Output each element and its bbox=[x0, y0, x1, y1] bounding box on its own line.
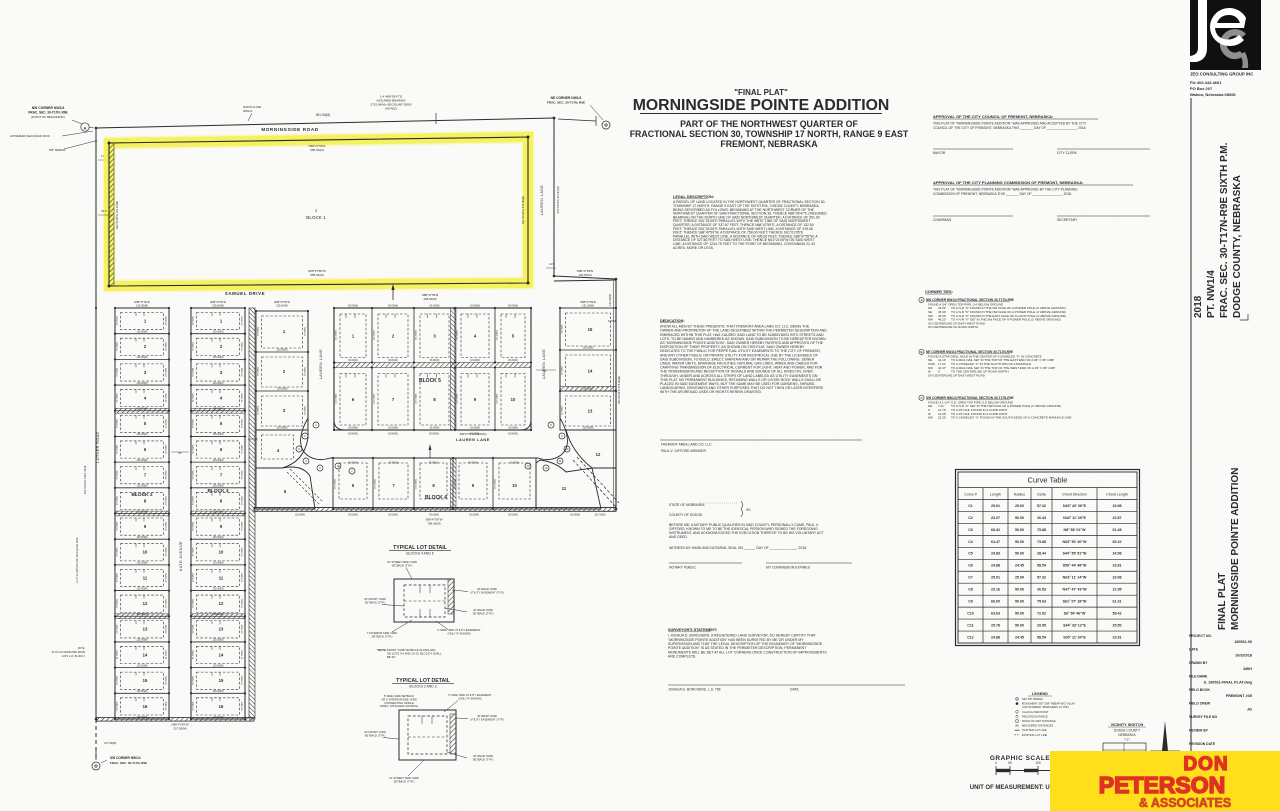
svg-text:60.00(M): 60.00(M) bbox=[117, 650, 119, 659]
svg-text:REVISION DATE: REVISION DATE bbox=[1189, 742, 1216, 746]
svg-text:11: 11 bbox=[562, 486, 567, 491]
svg-text:FINAL PLAT: FINAL PLAT bbox=[1217, 573, 1228, 630]
svg-text:13: 13 bbox=[143, 627, 148, 632]
svg-text:125.00(M): 125.00(M) bbox=[137, 330, 148, 333]
svg-text:ON CENTERLINE OF ROAD NORTH: ON CENTERLINE OF ROAD NORTH bbox=[928, 325, 978, 329]
svg-text:LAUREN LANE: LAUREN LANE bbox=[456, 438, 490, 442]
svg-text:SETBACK (TYP.): SETBACK (TYP.) bbox=[473, 611, 494, 615]
svg-text:63.00(M): 63.00(M) bbox=[508, 305, 518, 308]
svg-text:83.08'(M): 83.08'(M) bbox=[508, 434, 518, 436]
svg-text:NW1/4: NW1/4 bbox=[243, 109, 253, 113]
svg-text:60.00(M): 60.00(M) bbox=[193, 573, 195, 582]
svg-text:SW CORNER NW1/4: SW CORNER NW1/4 bbox=[110, 756, 141, 760]
svg-text:RECORD DISTANCE: RECORD DISTANCE bbox=[1022, 714, 1048, 718]
svg-text:APPROVAL OF THE CITY PLANNING: APPROVAL OF THE CITY PLANNING COMMISSION… bbox=[933, 180, 1083, 185]
svg-text:125.00(M): 125.00(M) bbox=[137, 664, 148, 667]
svg-text:SECRETARY: SECRETARY bbox=[1057, 218, 1078, 222]
svg-text:60.00(M): 60.00(M) bbox=[193, 702, 195, 711]
svg-text:63.00(M): 63.00(M) bbox=[508, 427, 518, 430]
svg-text:5' SIDE YARD UTILITY EASEMENT: 5' SIDE YARD UTILITY EASEMENT bbox=[437, 628, 481, 632]
svg-text:COUNCIL OF THE CITY OF FREMONT: COUNCIL OF THE CITY OF FREMONT, NEBRASKA… bbox=[933, 126, 1086, 130]
svg-text:B: B bbox=[920, 350, 922, 354]
svg-text:50: 50 bbox=[1008, 761, 1012, 765]
svg-text:60.00(M): 60.00(M) bbox=[242, 676, 244, 685]
svg-text:61.31: 61.31 bbox=[1113, 600, 1122, 604]
svg-text:60.00(M): 60.00(M) bbox=[166, 368, 168, 377]
svg-text:125.00(M): 125.00(M) bbox=[213, 433, 224, 436]
svg-text:24.58: 24.58 bbox=[1113, 552, 1122, 556]
svg-text:60.00(M): 60.00(M) bbox=[166, 573, 168, 582]
svg-text:125.00(M): 125.00(M) bbox=[213, 485, 224, 488]
svg-text:12.5': 12.5' bbox=[549, 262, 555, 266]
svg-text:MONUMENT SET (5/8" REBAR W/2": MONUMENT SET (5/8" REBAR W/2" ALUM bbox=[1022, 702, 1075, 706]
svg-text:60.00(M): 60.00(M) bbox=[166, 624, 168, 633]
svg-text:12: 12 bbox=[596, 452, 601, 457]
svg-text:Curve #: Curve # bbox=[964, 493, 977, 497]
svg-text:NE CORNER NW1/4 FRACTIONAL SEC: NE CORNER NW1/4 FRACTIONAL SECTION 30-T1… bbox=[926, 350, 1013, 354]
svg-text:26.44: 26.44 bbox=[1037, 516, 1046, 520]
svg-text:FRAC. SEC. 30-T17N, R9E: FRAC. SEC. 30-T17N, R9E bbox=[547, 101, 585, 105]
svg-text:PART OF THE NORTHWEST QUARTER: PART OF THE NORTHWEST QUARTER OF bbox=[680, 119, 858, 129]
svg-text:(M)-R(D): (M)-R(D) bbox=[385, 107, 396, 111]
svg-text:60.00(M): 60.00(M) bbox=[193, 419, 195, 428]
svg-text:N63° 50' 40"W: N63° 50' 40"W bbox=[1063, 540, 1088, 544]
svg-text:132.50(M): 132.50(M) bbox=[578, 273, 591, 277]
svg-text:16: 16 bbox=[143, 704, 148, 709]
svg-text:125.00(M): 125.00(M) bbox=[213, 536, 224, 539]
svg-text:DATE: DATE bbox=[790, 688, 800, 692]
svg-text:PT. NW1/4: PT. NW1/4 bbox=[1206, 270, 1217, 318]
svg-text:12: 12 bbox=[219, 601, 224, 606]
svg-text:125.00(M): 125.00(M) bbox=[137, 382, 148, 385]
svg-text:C11: C11 bbox=[967, 623, 973, 627]
svg-text:125.00(M): 125.00(M) bbox=[137, 433, 148, 436]
svg-text:NW CORNER NW1/4: NW CORNER NW1/4 bbox=[32, 106, 65, 110]
svg-text:APPROVAL OF THE CITY COUNCIL O: APPROVAL OF THE CITY COUNCIL OF FREMONT,… bbox=[933, 114, 1053, 119]
svg-text:40' REAR YARD: 40' REAR YARD bbox=[477, 587, 497, 591]
svg-text:60.00(M): 60.00(M) bbox=[193, 676, 195, 685]
svg-text:2-1/2" ALUMINUM CAP (SEC/QUAR: 2-1/2" ALUMINUM CAP (SEC/QUAR ROD) bbox=[76, 537, 79, 583]
svg-text:24.88: 24.88 bbox=[991, 635, 1000, 639]
svg-text:ARE COMPLETE.: ARE COMPLETE. bbox=[668, 655, 696, 659]
svg-text:60.00(M): 60.00(M) bbox=[242, 368, 244, 377]
svg-text:60.00(M): 60.00(M) bbox=[166, 342, 168, 351]
svg-text:50.00: 50.00 bbox=[1015, 540, 1024, 544]
svg-text:408.00(M): 408.00(M) bbox=[423, 297, 436, 301]
svg-text:40' REAR YARD: 40' REAR YARD bbox=[477, 714, 497, 718]
svg-text:BE 30'.: BE 30'. bbox=[387, 655, 396, 659]
svg-text:25.01: 25.01 bbox=[991, 504, 1000, 508]
svg-text:23.91: 23.91 bbox=[1113, 635, 1122, 639]
svg-text:125.00(M): 125.00(M) bbox=[457, 394, 459, 404]
svg-text:75.88: 75.88 bbox=[1037, 528, 1046, 532]
svg-text:CITY CLERK: CITY CLERK bbox=[1057, 151, 1078, 155]
svg-text:23.16: 23.16 bbox=[991, 588, 1000, 592]
svg-text:60.00(M): 60.00(M) bbox=[242, 470, 244, 479]
svg-text:22.35': 22.35' bbox=[938, 416, 947, 420]
svg-text:50.00: 50.00 bbox=[1015, 600, 1024, 604]
svg-text:N88°47'52"E: N88°47'52"E bbox=[274, 300, 290, 304]
svg-text:60.00(M): 60.00(M) bbox=[242, 419, 244, 428]
svg-text:60.00(M): 60.00(M) bbox=[166, 702, 168, 711]
svg-text:MEASURED DISTANCES: MEASURED DISTANCES bbox=[1022, 724, 1053, 728]
svg-text:63.00(M): 63.00(M) bbox=[468, 461, 478, 464]
svg-text:60.00(M): 60.00(M) bbox=[166, 316, 168, 325]
svg-text:S44° 59' 51"W: S44° 59' 51"W bbox=[1063, 552, 1087, 556]
svg-text:60.00(M): 60.00(M) bbox=[562, 324, 564, 333]
svg-text:14: 14 bbox=[588, 368, 593, 373]
svg-text:125.00(M): 125.00(M) bbox=[137, 690, 148, 693]
svg-text:125.00(M): 125.00(M) bbox=[336, 330, 338, 340]
svg-text:BLOCK 4: BLOCK 4 bbox=[425, 495, 447, 501]
svg-text:60.00(M): 60.00(M) bbox=[305, 406, 307, 415]
svg-text:13: 13 bbox=[588, 408, 593, 413]
svg-text:SURVEY FILE NO: SURVEY FILE NO bbox=[1189, 715, 1217, 719]
svg-text:C: C bbox=[920, 396, 922, 400]
svg-text:60.00(M): 60.00(M) bbox=[242, 496, 244, 505]
svg-text:60.00(M): 60.00(M) bbox=[242, 445, 244, 454]
svg-text:83.08'(M): 83.08'(M) bbox=[429, 434, 439, 436]
svg-text:FRAC. SEC. 30-T17N-R9E SIXTH P: FRAC. SEC. 30-T17N-R9E SIXTH P.M. bbox=[1219, 142, 1230, 318]
svg-text:13: 13 bbox=[219, 627, 224, 632]
svg-text:WITNESS MY HAND AND NOTARIAL S: WITNESS MY HAND AND NOTARIAL SEAL ON ___… bbox=[669, 546, 807, 550]
svg-text:63.00(M): 63.00(M) bbox=[389, 461, 399, 464]
svg-text:125.00(M): 125.00(M) bbox=[213, 690, 224, 693]
svg-text:60.00(M): 60.00(M) bbox=[117, 419, 119, 428]
svg-text:20' REAR YARD: 20' REAR YARD bbox=[473, 754, 493, 758]
svg-text:NOTE:: NOTE: bbox=[78, 647, 86, 650]
svg-text:125.00(M): 125.00(M) bbox=[497, 394, 499, 404]
svg-text:22.87: 22.87 bbox=[1113, 516, 1122, 520]
svg-text:60.00(M): 60.00(M) bbox=[562, 406, 564, 415]
svg-text:29.55: 29.55 bbox=[1037, 623, 1046, 627]
svg-text:LOTS 1-16, BLOCK 2: LOTS 1-16, BLOCK 2 bbox=[62, 655, 86, 658]
svg-text:LUTHER ROAD: LUTHER ROAD bbox=[96, 431, 100, 462]
svg-text:58.54: 58.54 bbox=[1037, 564, 1046, 568]
svg-text:(CONNECTING SINGLE: (CONNECTING SINGLE bbox=[384, 701, 414, 705]
svg-text:LEGEND: LEGEND bbox=[1032, 692, 1048, 696]
svg-text:C2: C2 bbox=[968, 516, 973, 520]
svg-text:60.00(M): 60.00(M) bbox=[242, 702, 244, 711]
svg-text:BLOCK 2: BLOCK 2 bbox=[131, 492, 152, 498]
svg-text:63.63: 63.63 bbox=[991, 612, 1000, 616]
svg-text:43.8′(M): 43.8′(M) bbox=[608, 321, 617, 323]
svg-text:125.00(M): 125.00(M) bbox=[375, 479, 377, 489]
svg-text:60.00(M): 60.00(M) bbox=[166, 445, 168, 454]
svg-text:N88°47'52"E: N88°47'52"E bbox=[134, 300, 150, 304]
svg-text:60.00(M): 60.00(M) bbox=[242, 393, 244, 402]
svg-text:CORNER TIES:: CORNER TIES: bbox=[925, 289, 953, 294]
svg-text:COMMISSION OF FREMONT, NEBRASK: COMMISSION OF FREMONT, NEBRASKA THIS ___… bbox=[933, 192, 1072, 196]
svg-text:COUNTY OF DODGE: COUNTY OF DODGE bbox=[669, 513, 703, 517]
svg-text:S59° 44' 48"W: S59° 44' 48"W bbox=[1063, 564, 1087, 568]
svg-text:NW CORNER NW1/4 FRACTIONAL SEC: NW CORNER NW1/4 FRACTIONAL SECTION 30-T1… bbox=[926, 298, 1014, 302]
svg-text:125.00(M): 125.00(M) bbox=[137, 639, 148, 642]
svg-text:23.98: 23.98 bbox=[1113, 576, 1122, 580]
svg-text:50.00: 50.00 bbox=[1015, 612, 1024, 616]
svg-text:63.00(M): 63.00(M) bbox=[429, 461, 439, 464]
svg-text:63.00(M): 63.00(M) bbox=[470, 359, 480, 362]
svg-text:NE CORNER NW1/4: NE CORNER NW1/4 bbox=[551, 96, 582, 100]
svg-text:14: 14 bbox=[219, 652, 224, 657]
svg-text:25.00: 25.00 bbox=[1015, 504, 1024, 508]
svg-text:PAUL V. GIFFORD-WENGER: PAUL V. GIFFORD-WENGER bbox=[661, 449, 706, 453]
svg-text:60.00(M): 60.00(M) bbox=[193, 445, 195, 454]
svg-text:S30° 11' 34"E: S30° 11' 34"E bbox=[1063, 635, 1086, 639]
svg-text:MORNINGSIDE POINTE ADDITION: MORNINGSIDE POINTE ADDITION bbox=[1230, 468, 1241, 630]
svg-text:64.47: 64.47 bbox=[991, 540, 1000, 544]
svg-text:25.0': 25.0' bbox=[101, 209, 107, 213]
svg-text:60.00(M): 60.00(M) bbox=[117, 368, 119, 377]
svg-text:C7: C7 bbox=[968, 576, 973, 580]
svg-text:STATE OF NEBRASKA: STATE OF NEBRASKA bbox=[669, 503, 705, 507]
svg-text:60.00(M): 60.00(M) bbox=[166, 599, 168, 608]
svg-text:125.00(M): 125.00(M) bbox=[497, 330, 499, 340]
svg-text:63.00(M): 63.00(M) bbox=[348, 359, 358, 362]
svg-text:TYPICAL LOT DETAIL: TYPICAL LOT DETAIL bbox=[393, 545, 448, 551]
svg-text:S44° 33' 12"E: S44° 33' 12"E bbox=[1063, 623, 1086, 627]
svg-text:A: A bbox=[84, 125, 87, 130]
svg-text:57.32: 57.32 bbox=[1037, 504, 1046, 508]
svg-text:50.00: 50.00 bbox=[1015, 516, 1024, 520]
svg-text:25.00: 25.00 bbox=[1015, 576, 1024, 580]
svg-text:Chord Direction: Chord Direction bbox=[1062, 493, 1087, 497]
svg-text:MORNINGSIDE POINTE ADDITION: MORNINGSIDE POINTE ADDITION bbox=[633, 97, 890, 114]
svg-text:60.00(M): 60.00(M) bbox=[193, 316, 195, 325]
svg-text:12: 12 bbox=[143, 601, 148, 606]
svg-text:60.00(M): 60.00(M) bbox=[242, 650, 244, 659]
svg-text:GRAPHIC SCALE: GRAPHIC SCALE bbox=[990, 755, 1050, 762]
svg-text:10' STREET SIDE YARD: 10' STREET SIDE YARD bbox=[387, 560, 417, 564]
svg-text:125.00(M): 125.00(M) bbox=[277, 388, 288, 391]
svg-text:24.83: 24.83 bbox=[991, 552, 1000, 556]
svg-text:125.00(M): 125.00(M) bbox=[213, 562, 224, 565]
svg-text:S_180511-FINAL PLAT.dwg: S_180511-FINAL PLAT.dwg bbox=[1204, 681, 1253, 685]
svg-text:60.00(M): 60.00(M) bbox=[562, 366, 564, 375]
svg-text:20' REAR YARD: 20' REAR YARD bbox=[473, 608, 493, 612]
svg-text:125.00(M): 125.00(M) bbox=[416, 479, 418, 489]
svg-text:50': 50' bbox=[178, 451, 182, 455]
svg-text:60.00(M): 60.00(M) bbox=[117, 316, 119, 325]
svg-text:60.00(M): 60.00(M) bbox=[117, 393, 119, 402]
svg-text:60.00(M): 60.00(M) bbox=[117, 676, 119, 685]
svg-text:OR 0' INTERIOR SIDE YARD: OR 0' INTERIOR SIDE YARD bbox=[381, 697, 416, 701]
svg-text:S6° 50' 46"W: S6° 50' 46"W bbox=[1064, 612, 1086, 616]
svg-text:50.00: 50.00 bbox=[1015, 588, 1024, 592]
svg-text:BLOCKS 2 AND 3: BLOCKS 2 AND 3 bbox=[409, 685, 436, 689]
svg-text:60.00(M): 60.00(M) bbox=[117, 547, 119, 556]
svg-text:60.00(M): 60.00(M) bbox=[193, 650, 195, 659]
svg-text:111.76(M): 111.76(M) bbox=[595, 513, 606, 516]
svg-text:60.00(M): 60.00(M) bbox=[117, 445, 119, 454]
svg-text:60.00(M): 60.00(M) bbox=[166, 650, 168, 659]
svg-text:S01°01'05"E 337.87(M): S01°01'05"E 337.87(M) bbox=[556, 186, 560, 213]
svg-text:UTILITY EASEMENT (TYP.): UTILITY EASEMENT (TYP.) bbox=[470, 590, 504, 594]
svg-text:60.00(M): 60.00(M) bbox=[242, 316, 244, 325]
svg-text:INSTRUMENT, AND ACKNOWLEDGED T: INSTRUMENT, AND ACKNOWLEDGED THE EXECUTI… bbox=[669, 531, 825, 535]
svg-text:125.00(M): 125.00(M) bbox=[416, 394, 418, 404]
svg-text:125.00(M): 125.00(M) bbox=[335, 479, 337, 489]
svg-text:5/8" REBAR: 5/8" REBAR bbox=[49, 148, 66, 152]
svg-text:N8° 58' 01"W: N8° 58' 01"W bbox=[1064, 528, 1087, 532]
svg-text:125.00(M): 125.00(M) bbox=[277, 349, 288, 352]
svg-text:AWH: AWH bbox=[1243, 667, 1252, 671]
svg-text:NEBRASKA: NEBRASKA bbox=[1118, 733, 1136, 737]
svg-text:Length: Length bbox=[990, 493, 1001, 497]
svg-text:11: 11 bbox=[143, 575, 148, 580]
svg-text:N88°47'59"E: N88°47'59"E bbox=[580, 300, 596, 304]
svg-text:DATE: DATE bbox=[1189, 648, 1199, 652]
svg-text:C10: C10 bbox=[967, 612, 974, 616]
svg-text:63.00(M): 63.00(M) bbox=[470, 427, 480, 430]
svg-text:VICINITY SKETCH: VICINITY SKETCH bbox=[1111, 723, 1144, 727]
svg-text:SETBACK (TYP.): SETBACK (TYP.) bbox=[392, 563, 413, 567]
svg-text:C12: C12 bbox=[967, 635, 974, 639]
svg-text:57.32: 57.32 bbox=[1037, 576, 1046, 580]
svg-text:EXISTING LOT LINE: EXISTING LOT LINE bbox=[1022, 733, 1047, 737]
svg-text:N42° 11' 29"E: N42° 11' 29"E bbox=[1063, 516, 1086, 520]
svg-text:63.00(M): 63.00(M) bbox=[388, 359, 398, 362]
svg-text:125.00(M): 125.00(M) bbox=[583, 427, 594, 430]
svg-text:DEDICATION:: DEDICATION: bbox=[660, 319, 685, 323]
svg-text:DODGE COUNTY, NEBRASKA: DODGE COUNTY, NEBRASKA bbox=[1232, 175, 1243, 318]
svg-text:PO Box 207: PO Box 207 bbox=[1190, 86, 1213, 91]
svg-text:"FINAL PLAT": "FINAL PLAT" bbox=[734, 88, 788, 97]
svg-text:C6: C6 bbox=[968, 564, 973, 568]
svg-text:73.88: 73.88 bbox=[1037, 540, 1046, 544]
svg-text:60.00(M): 60.00(M) bbox=[193, 624, 195, 633]
svg-text:60.00(M): 60.00(M) bbox=[166, 393, 168, 402]
svg-text:MAYOR: MAYOR bbox=[933, 151, 946, 155]
svg-text:BLOCKS 4 AND 5: BLOCKS 4 AND 5 bbox=[406, 552, 433, 556]
svg-text:20' FRONT YARD: 20' FRONT YARD bbox=[364, 730, 385, 734]
svg-text:60.00(M): 60.00(M) bbox=[117, 702, 119, 711]
svg-text:63.00(M): 63.00(M) bbox=[348, 513, 358, 516]
svg-text:60.00(M): 60.00(M) bbox=[193, 470, 195, 479]
svg-text:63.00(M): 63.00(M) bbox=[388, 427, 398, 430]
svg-text:60.00(M): 60.00(M) bbox=[258, 327, 260, 336]
svg-text:SAMUEL DRIVE: SAMUEL DRIVE bbox=[225, 291, 265, 296]
svg-text:60.00(M): 60.00(M) bbox=[166, 547, 168, 556]
svg-text:125.00(M): 125.00(M) bbox=[374, 394, 376, 404]
svg-text:FIELD CREW: FIELD CREW bbox=[1189, 702, 1211, 706]
svg-text:& ASSOCIATES: & ASSOCIATES bbox=[1139, 796, 1231, 810]
svg-text:25' FRONT YARD: 25' FRONT YARD bbox=[364, 597, 385, 601]
svg-text:RIGHT-OF-WAY DISTANCE: RIGHT-OF-WAY DISTANCE bbox=[1022, 719, 1056, 723]
svg-text:PLATTED LOT LINE: PLATTED LOT LINE bbox=[1022, 728, 1047, 732]
svg-text:SETBACK (TYP.): SETBACK (TYP.) bbox=[372, 634, 393, 638]
svg-text:(M): (M) bbox=[1015, 725, 1019, 728]
svg-text:63.00(M): 63.00(M) bbox=[508, 359, 518, 362]
svg-text:FRACTIONAL SECTION 30, TOWNSHI: FRACTIONAL SECTION 30, TOWNSHIP 17 NORTH… bbox=[630, 129, 909, 139]
svg-text:15: 15 bbox=[143, 678, 148, 683]
svg-text:FILE NAME: FILE NAME bbox=[1189, 675, 1208, 679]
svg-text:C3: C3 bbox=[968, 528, 973, 532]
svg-text:FREMONT AREA LAND CO. LLC: FREMONT AREA LAND CO. LLC bbox=[661, 443, 712, 447]
svg-text:125.00(M): 125.00(M) bbox=[137, 536, 148, 539]
svg-text:TYPICAL LOT DETAIL: TYPICAL LOT DETAIL bbox=[396, 678, 451, 684]
svg-text:125.00(M): 125.00(M) bbox=[212, 304, 224, 308]
svg-text:66.00: 66.00 bbox=[991, 600, 1000, 604]
svg-text:FIELD BOOK: FIELD BOOK bbox=[1189, 688, 1210, 692]
svg-text:5' SIDE YARD SETBACK: 5' SIDE YARD SETBACK bbox=[384, 694, 414, 698]
svg-text:LEGAL DESCRIPTION:: LEGAL DESCRIPTION: bbox=[673, 195, 714, 199]
svg-text:Wahoo, Nebraska 68066: Wahoo, Nebraska 68066 bbox=[1190, 92, 1236, 97]
svg-text:16: 16 bbox=[219, 704, 224, 709]
svg-text:131.29(M): 131.29(M) bbox=[582, 304, 594, 308]
svg-text:125.00(M): 125.00(M) bbox=[213, 459, 224, 462]
svg-text:2018: 2018 bbox=[1193, 295, 1204, 318]
svg-text:63.00(M): 63.00(M) bbox=[348, 427, 358, 430]
svg-text:MORNINGSIDE ROAD: MORNINGSIDE ROAD bbox=[261, 127, 318, 132]
svg-text:Delta: Delta bbox=[1037, 493, 1045, 497]
svg-text:N26° 43' 06"E: N26° 43' 06"E bbox=[1063, 504, 1087, 508]
svg-text:22.95: 22.95 bbox=[1113, 588, 1122, 592]
svg-text:63.00(M): 63.00(M) bbox=[348, 305, 358, 308]
svg-text:125.00(M): 125.00(M) bbox=[213, 382, 224, 385]
svg-text:63.00(M): 63.00(M) bbox=[429, 513, 439, 516]
svg-text:60.00(M): 60.00(M) bbox=[117, 624, 119, 633]
svg-text:125.00(M): 125.00(M) bbox=[374, 330, 376, 340]
svg-text:0: 0 bbox=[995, 761, 997, 765]
svg-text:125.00(M): 125.00(M) bbox=[495, 479, 497, 489]
svg-text:NW: NW bbox=[928, 416, 933, 420]
svg-text:60.00(M): 60.00(M) bbox=[166, 522, 168, 531]
svg-text:28.44: 28.44 bbox=[1037, 552, 1046, 556]
svg-text:LAUREN LANE: LAUREN LANE bbox=[319, 349, 323, 380]
svg-text:S01°01'05"E 1234.75(M): S01°01'05"E 1234.75(M) bbox=[83, 466, 87, 495]
svg-text:63.00(M): 63.00(M) bbox=[429, 305, 439, 308]
svg-text:60.00(M): 60.00(M) bbox=[305, 367, 307, 376]
svg-text:C5: C5 bbox=[968, 552, 973, 556]
svg-text:60.00(M): 60.00(M) bbox=[166, 419, 168, 428]
svg-text:60.00(M): 60.00(M) bbox=[117, 470, 119, 479]
svg-text:60.00(M): 60.00(M) bbox=[117, 599, 119, 608]
svg-text:SETBACK (TYP.): SETBACK (TYP.) bbox=[365, 600, 386, 604]
svg-text:S01°01'05"E 475.00(M): S01°01'05"E 475.00(M) bbox=[521, 196, 525, 224]
svg-text:125.00(M): 125.00(M) bbox=[416, 330, 418, 340]
svg-text:24.45: 24.45 bbox=[1015, 564, 1024, 568]
svg-text:24.88: 24.88 bbox=[991, 564, 1000, 568]
svg-text:50': 50' bbox=[543, 369, 547, 373]
svg-text:125.00(M): 125.00(M) bbox=[277, 427, 288, 430]
svg-text:Fle 402.443.4661: Fle 402.443.4661 bbox=[1190, 80, 1222, 85]
svg-text:125.00(M): 125.00(M) bbox=[583, 347, 594, 350]
svg-text:50.00: 50.00 bbox=[1015, 623, 1024, 627]
svg-text:14: 14 bbox=[143, 652, 148, 657]
svg-text:59.42: 59.42 bbox=[1113, 612, 1122, 616]
svg-text:BLOCK 1: BLOCK 1 bbox=[306, 215, 326, 220]
svg-text:83.08'(M): 83.08'(M) bbox=[388, 434, 398, 436]
svg-text:N47° 47' 43"W: N47° 47' 43"W bbox=[1063, 588, 1088, 592]
svg-text:23.98: 23.98 bbox=[1113, 504, 1122, 508]
svg-text:951.00(M): 951.00(M) bbox=[316, 113, 331, 117]
svg-text:3/4"REBAR-SEC/QUAR ROD: 3/4"REBAR-SEC/QUAR ROD bbox=[10, 134, 51, 138]
svg-text:26.53: 26.53 bbox=[1037, 588, 1046, 592]
svg-text:63.00(M): 63.00(M) bbox=[430, 427, 440, 430]
svg-text:60.00(M): 60.00(M) bbox=[258, 406, 260, 415]
svg-text:61.48: 61.48 bbox=[1113, 528, 1122, 532]
svg-text:125.00(M): 125.00(M) bbox=[213, 639, 224, 642]
svg-text:DRAWN BY: DRAWN BY bbox=[1189, 661, 1208, 665]
svg-text:Radius: Radius bbox=[1014, 493, 1025, 497]
svg-text:125.00(M): 125.00(M) bbox=[213, 330, 224, 333]
svg-text:10/3/2018: 10/3/2018 bbox=[1235, 654, 1252, 658]
svg-text:NOTARY PUBLIC: NOTARY PUBLIC bbox=[669, 566, 696, 570]
svg-text:327.50(M): 327.50(M) bbox=[173, 727, 186, 731]
svg-text:15: 15 bbox=[588, 327, 593, 332]
svg-text:SETBACK (TYP.): SETBACK (TYP.) bbox=[473, 757, 494, 761]
